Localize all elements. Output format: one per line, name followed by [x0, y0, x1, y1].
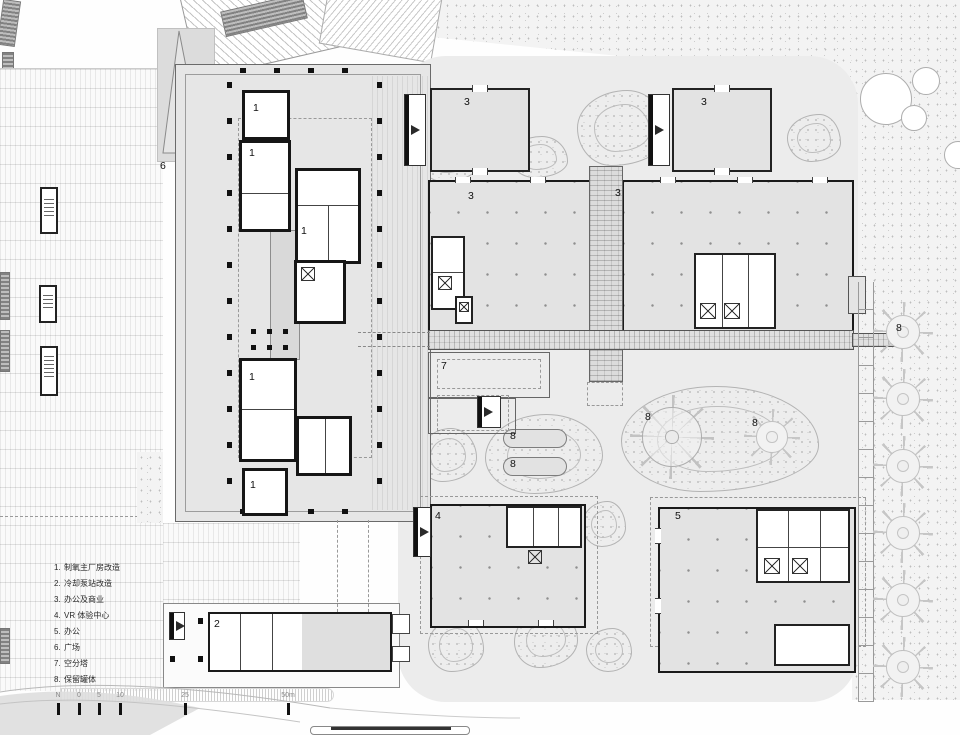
scale-tick [57, 703, 60, 715]
building-1-room [239, 358, 297, 462]
marker-8: 8 [752, 418, 758, 429]
context-building-fragment [0, 0, 21, 47]
edge-structure [0, 330, 10, 372]
legend-label: 制氧主厂房改造 [64, 563, 120, 572]
building-7-dashed [437, 359, 541, 389]
marker-1: 1 [250, 480, 256, 491]
entry-notch [530, 177, 546, 183]
partition [433, 272, 463, 273]
legend-num: 1. [54, 563, 64, 572]
context-structure-bar [331, 727, 451, 730]
partition [242, 409, 294, 410]
legend-item: 6.广场 [54, 642, 80, 653]
stipple-strip [137, 452, 163, 523]
edge-structure [0, 272, 10, 320]
building-1-room [242, 90, 290, 140]
entry-notch [655, 598, 661, 614]
walkway-link-dashed [358, 346, 430, 347]
legend-num: 3. [54, 595, 64, 604]
legend-num: 6. [54, 643, 64, 652]
marker-8: 8 [510, 459, 516, 470]
ladder-track [858, 282, 874, 702]
marker-6: 6 [160, 161, 166, 172]
legend-num: 4. [54, 611, 64, 620]
marker-2: 2 [214, 619, 220, 630]
context-building-roof [319, 0, 446, 63]
partition [722, 255, 723, 327]
building-1-room [239, 140, 291, 232]
stair-core [40, 346, 58, 396]
shaft-xbox [528, 550, 542, 564]
building-3-core-rooms [694, 253, 776, 329]
marker-3: 3 [701, 97, 707, 108]
building-1-column-ticks-right [377, 82, 382, 506]
landscape-blob [787, 114, 841, 162]
entry-notch [812, 177, 828, 183]
retained-tank-circle [873, 570, 933, 630]
entry-notch [660, 177, 676, 183]
entry-notch [714, 85, 730, 92]
building-1-room [294, 260, 346, 324]
scale-bar: N 0 5 10 25 50m [0, 690, 340, 722]
scale-label: 10 [108, 692, 132, 699]
stair-block [404, 94, 426, 166]
building-3-small-left [430, 88, 530, 172]
context-structure-bottom [310, 726, 470, 735]
legend-label: 广场 [64, 643, 80, 652]
building-1-column-ticks-left [227, 82, 232, 506]
scale-tick [78, 703, 81, 715]
shaft-xbox [764, 558, 780, 574]
partition [325, 419, 326, 473]
stair-core [40, 187, 58, 234]
edge-structure [0, 628, 10, 664]
building-5-core-rooms [756, 509, 850, 583]
legend-num: 2. [54, 579, 64, 588]
shaft-xbox [459, 302, 469, 312]
legend-item: 5.办公 [54, 626, 80, 637]
partition [328, 205, 329, 261]
legend-label: VR 体验中心 [64, 611, 109, 620]
retained-tank-circle [873, 637, 933, 697]
marker-7: 7 [441, 361, 447, 372]
entry-notch [455, 177, 471, 183]
column [283, 345, 288, 350]
scale-tick [184, 703, 187, 715]
partition [558, 508, 559, 546]
entry-notch [714, 168, 730, 175]
retained-tank-circle [873, 503, 933, 563]
scale-tick [119, 703, 122, 715]
marker-1: 1 [249, 148, 255, 159]
marker-5: 5 [675, 511, 681, 522]
legend-label: 空分塔 [64, 659, 88, 668]
legend-item: 8.保留罐体 [54, 674, 96, 685]
shaft-xbox [301, 267, 315, 281]
legend-item: 4.VR 体验中心 [54, 610, 109, 621]
shaft-xbox [792, 558, 808, 574]
tree [901, 105, 927, 131]
building-3-small-right [672, 88, 772, 172]
retained-tank-circle [873, 436, 933, 496]
marker-3: 3 [464, 97, 470, 108]
legend-num: 8. [54, 675, 64, 684]
column [251, 345, 256, 350]
entry-notch [737, 177, 753, 183]
legend-label: 保留罐体 [64, 675, 96, 684]
axis-dashed [337, 520, 338, 612]
building-1-room [296, 416, 352, 476]
partition [820, 511, 821, 581]
column [267, 329, 272, 334]
walkway-link-dashed [358, 332, 430, 333]
marker-4: 4 [435, 511, 441, 522]
stair-block [648, 94, 670, 166]
marker-1: 1 [301, 226, 307, 237]
marker-8: 8 [896, 323, 902, 334]
marker-8: 8 [510, 431, 516, 442]
marker-1: 1 [253, 103, 259, 114]
shaft-xbox [438, 276, 452, 290]
column [267, 345, 272, 350]
scale-label: 25 [173, 692, 197, 699]
partition [788, 511, 789, 581]
building-4-rooms [506, 506, 582, 548]
building-1-room [295, 168, 361, 264]
stair-block [413, 507, 431, 557]
axis-dashed [368, 520, 369, 612]
partition [533, 508, 534, 546]
scale-label: 50m [276, 692, 300, 699]
legend-item: 7.空分塔 [54, 658, 88, 669]
legend: 1.制氧主厂房改造 2.冷却泵站改造 3.办公及商业 4.VR 体验中心 5.办… [54, 560, 184, 688]
walkway-stair-shaft [455, 296, 473, 324]
legend-item: 1.制氧主厂房改造 [54, 562, 120, 573]
stair-core [39, 285, 57, 323]
building-1-column-ticks-top [240, 68, 370, 73]
entry-notch [468, 620, 484, 626]
entry-notch [472, 168, 488, 175]
legend-item: 2.冷却泵站改造 [54, 578, 112, 589]
legend-item: 3.办公及商业 [54, 594, 104, 605]
scale-tick [98, 703, 101, 715]
marker-1: 1 [249, 372, 255, 383]
tree [912, 67, 940, 95]
retained-tank-circle [873, 369, 933, 429]
entry-notch [472, 85, 488, 92]
marker-8: 8 [645, 412, 651, 423]
legend-num: 5. [54, 627, 64, 636]
partition [242, 193, 288, 194]
retained-tank-circle-large [630, 395, 714, 479]
column [251, 329, 256, 334]
marker-3: 3 [615, 188, 621, 199]
partition [758, 547, 848, 548]
retained-tank-circle [873, 302, 933, 362]
legend-label: 办公 [64, 627, 80, 636]
legend-label: 办公及商业 [64, 595, 104, 604]
entry-notch [655, 528, 661, 544]
building-1-room [242, 468, 288, 516]
column [283, 329, 288, 334]
building-7-stair [477, 396, 501, 428]
entry-notch [538, 620, 554, 626]
site-plan-canvas: 1 1 1 1 1 2 3 3 3 3 4 5 6 7 8 8 8 8 8 1.… [0, 0, 960, 735]
corridor-extension-dashed [587, 382, 623, 406]
partition [748, 255, 749, 327]
building-2-annex [392, 614, 410, 634]
legend-num: 7. [54, 659, 64, 668]
scale-tick [287, 703, 290, 715]
legend-label: 冷却泵站改造 [64, 579, 112, 588]
building-5-room-br [774, 624, 850, 666]
landscape-blob [586, 628, 632, 672]
shaft-xbox [724, 303, 740, 319]
shaft-xbox [700, 303, 716, 319]
walkway-bridge [428, 330, 854, 350]
marker-3: 3 [468, 191, 474, 202]
